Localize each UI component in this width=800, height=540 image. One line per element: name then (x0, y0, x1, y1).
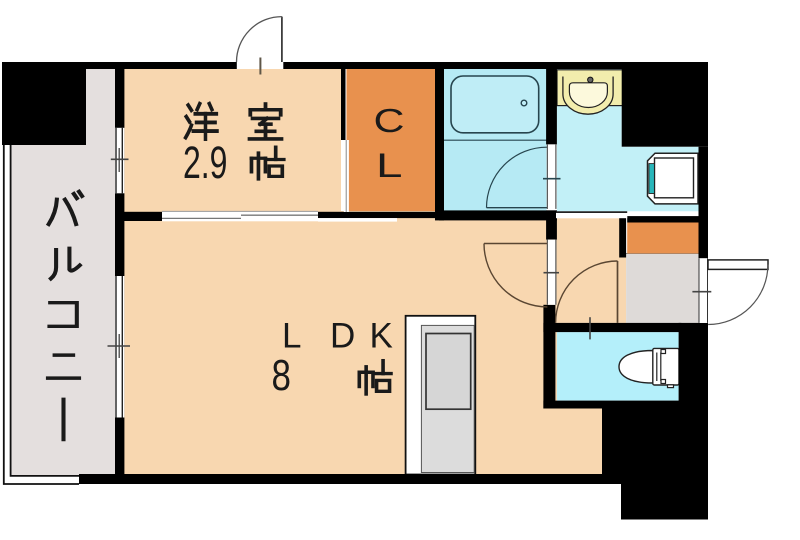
svg-text:L: L (282, 316, 301, 355)
svg-text:K: K (370, 316, 393, 355)
svg-text:8: 8 (272, 351, 291, 400)
svg-text:D: D (330, 316, 355, 355)
svg-text:L: L (376, 147, 402, 185)
svg-text:2.9: 2.9 (183, 139, 227, 189)
svg-text:C: C (374, 103, 405, 140)
